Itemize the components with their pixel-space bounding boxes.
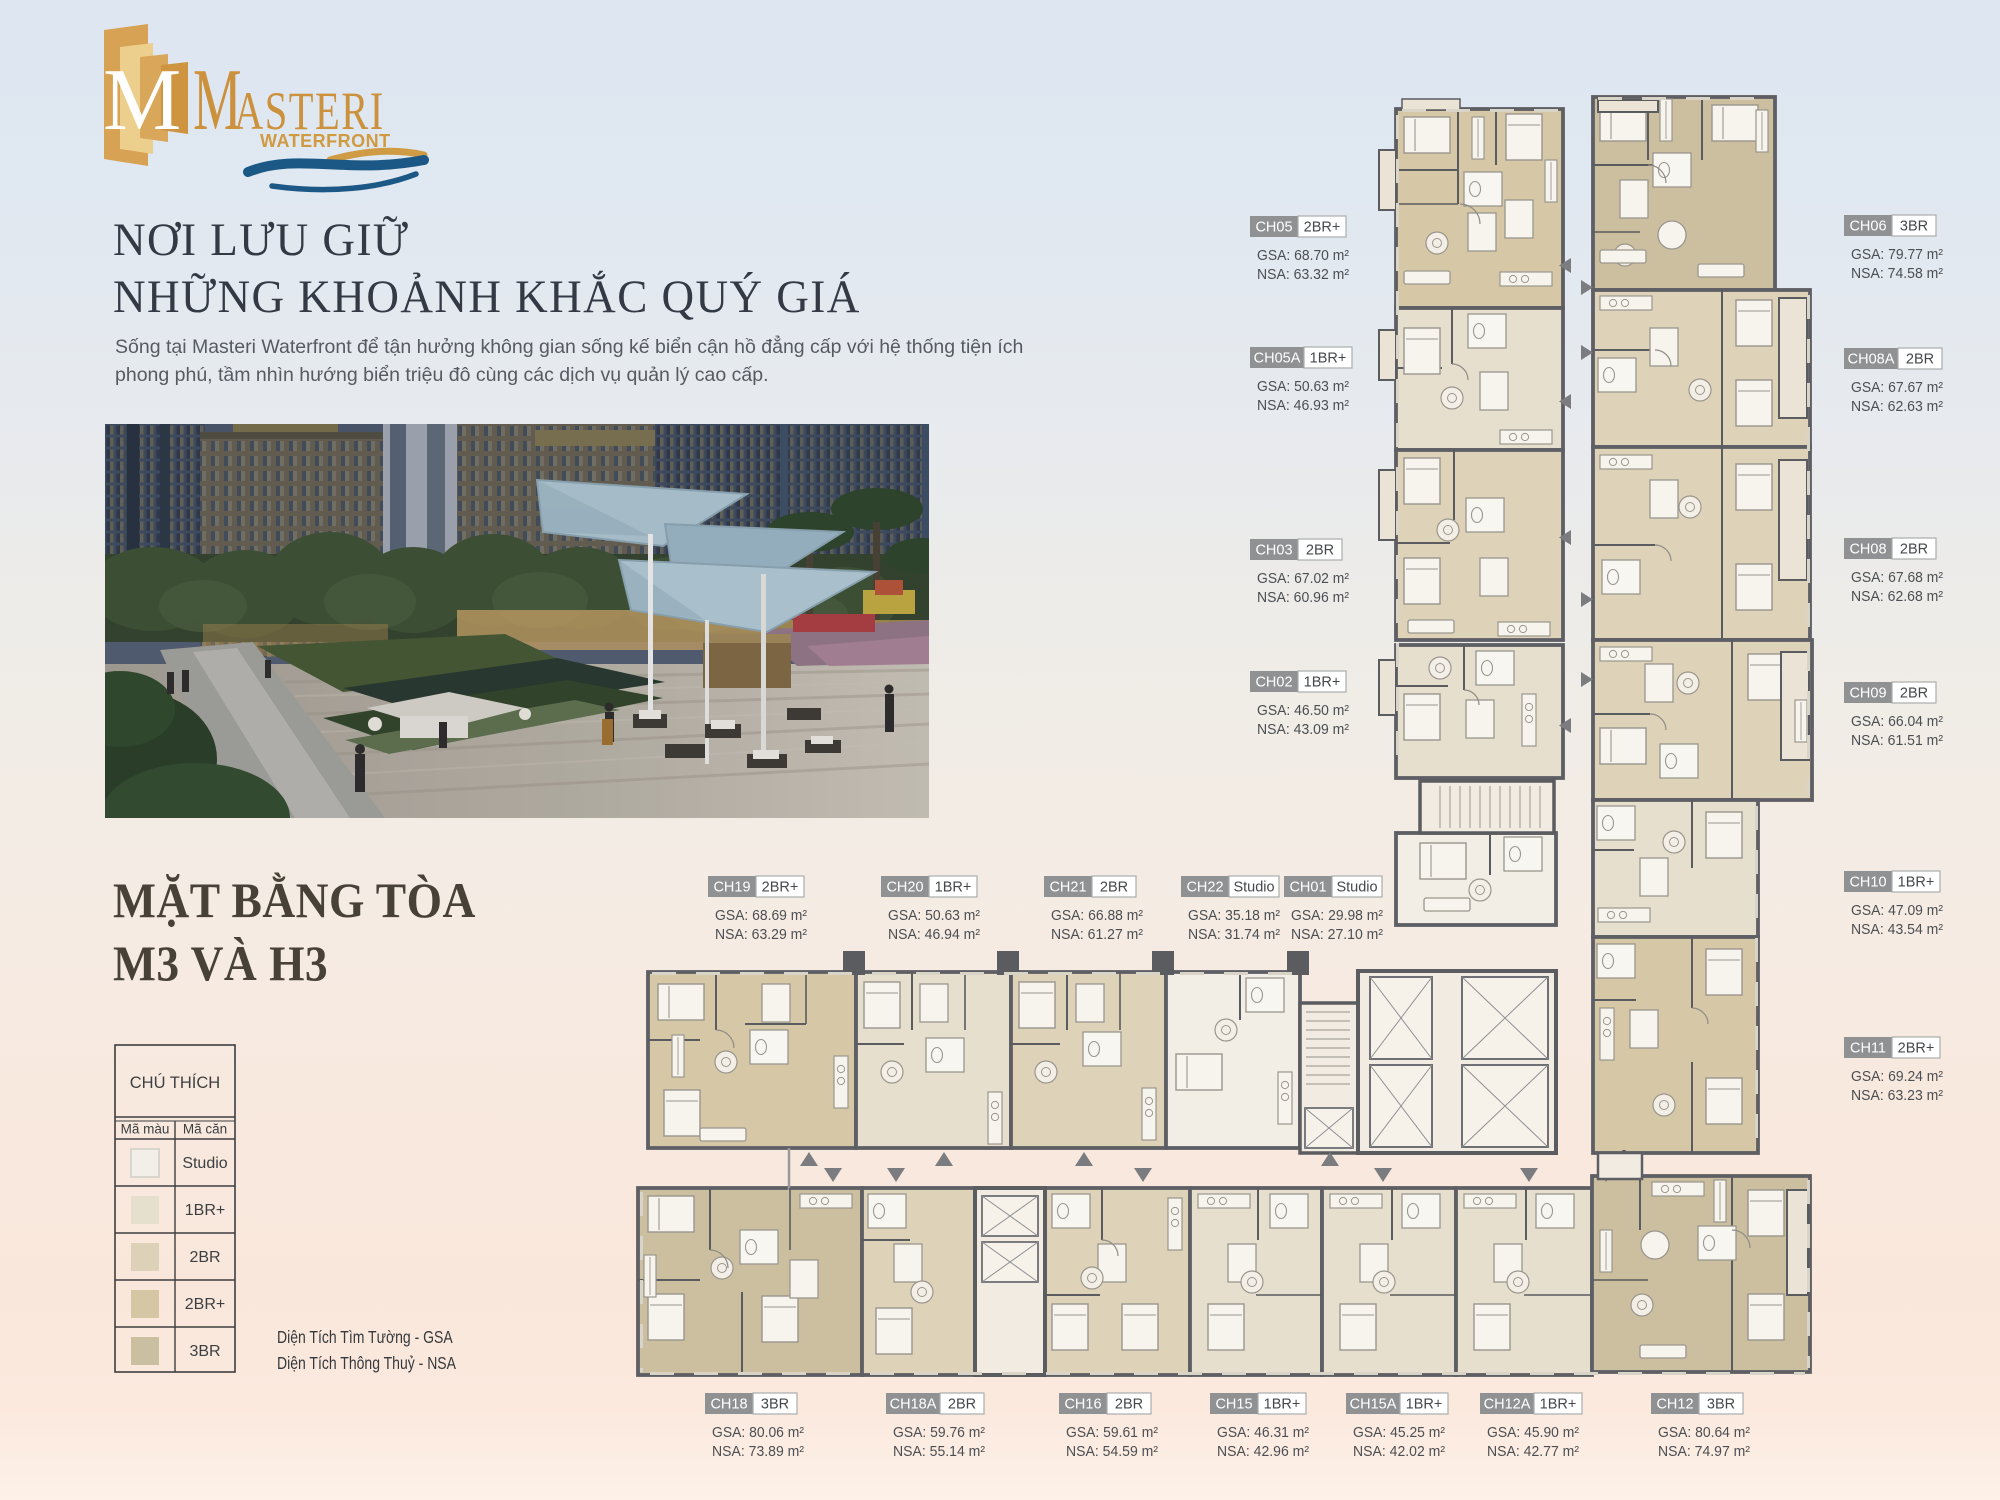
svg-text:GSA: 29.98 m²: GSA: 29.98 m² [1291, 908, 1383, 924]
svg-text:NSA: 55.14 m²: NSA: 55.14 m² [893, 1444, 985, 1460]
svg-text:NSA: 43.54 m²: NSA: 43.54 m² [1851, 922, 1943, 938]
svg-text:1BR+: 1BR+ [1310, 351, 1347, 367]
svg-text:2BR: 2BR [1100, 880, 1128, 896]
svg-text:Studio: Studio [1233, 880, 1274, 896]
svg-text:GSA: 80.64 m²: GSA: 80.64 m² [1658, 1425, 1750, 1441]
svg-text:CH09: CH09 [1849, 686, 1886, 702]
svg-text:NSA: 60.96 m²: NSA: 60.96 m² [1257, 590, 1349, 606]
svg-text:CH12A: CH12A [1484, 1397, 1531, 1413]
svg-text:2BR: 2BR [1115, 1397, 1143, 1413]
svg-text:CH15: CH15 [1215, 1397, 1252, 1413]
svg-text:GSA: 67.68 m²: GSA: 67.68 m² [1851, 570, 1943, 586]
svg-text:2BR: 2BR [1306, 543, 1334, 559]
svg-text:CH16: CH16 [1064, 1397, 1101, 1413]
svg-text:NSA: 43.09 m²: NSA: 43.09 m² [1257, 722, 1349, 738]
svg-text:2BR+: 2BR+ [762, 880, 799, 896]
svg-text:CH15A: CH15A [1350, 1397, 1397, 1413]
svg-text:2BR+: 2BR+ [1898, 1041, 1935, 1057]
svg-text:NSA: 73.89 m²: NSA: 73.89 m² [712, 1444, 804, 1460]
svg-text:CH19: CH19 [713, 880, 750, 896]
svg-text:2BR+: 2BR+ [1304, 220, 1341, 236]
svg-text:2BR: 2BR [948, 1397, 976, 1413]
svg-text:1BR+: 1BR+ [1304, 675, 1341, 691]
svg-text:GSA: 66.04 m²: GSA: 66.04 m² [1851, 714, 1943, 730]
svg-text:2BR: 2BR [1906, 352, 1934, 368]
svg-text:Studio: Studio [1336, 880, 1377, 896]
svg-text:GSA: 67.67 m²: GSA: 67.67 m² [1851, 380, 1943, 396]
svg-text:GSA: 46.50 m²: GSA: 46.50 m² [1257, 703, 1349, 719]
svg-text:GSA: 67.02 m²: GSA: 67.02 m² [1257, 571, 1349, 587]
svg-text:GSA: 46.31 m²: GSA: 46.31 m² [1217, 1425, 1309, 1441]
svg-text:NSA: 62.68 m²: NSA: 62.68 m² [1851, 589, 1943, 605]
svg-text:NSA: 31.74 m²: NSA: 31.74 m² [1188, 927, 1280, 943]
svg-text:3BR: 3BR [761, 1397, 789, 1413]
svg-text:GSA: 45.90 m²: GSA: 45.90 m² [1487, 1425, 1579, 1441]
svg-text:NSA: 42.77 m²: NSA: 42.77 m² [1487, 1444, 1579, 1460]
svg-text:NSA: 62.63 m²: NSA: 62.63 m² [1851, 399, 1943, 415]
svg-text:GSA: 68.69 m²: GSA: 68.69 m² [715, 908, 807, 924]
svg-text:CH05: CH05 [1255, 220, 1292, 236]
svg-text:CH10: CH10 [1849, 875, 1886, 891]
svg-text:NSA: 54.59 m²: NSA: 54.59 m² [1066, 1444, 1158, 1460]
svg-text:GSA: 50.63 m²: GSA: 50.63 m² [1257, 379, 1349, 395]
svg-text:CH21: CH21 [1049, 880, 1086, 896]
svg-text:NSA: 42.02 m²: NSA: 42.02 m² [1353, 1444, 1445, 1460]
svg-text:3BR: 3BR [1707, 1397, 1735, 1413]
svg-text:NSA: 63.23 m²: NSA: 63.23 m² [1851, 1088, 1943, 1104]
svg-text:GSA: 45.25 m²: GSA: 45.25 m² [1353, 1425, 1445, 1441]
svg-text:CH20: CH20 [886, 880, 923, 896]
svg-text:NSA: 63.29 m²: NSA: 63.29 m² [715, 927, 807, 943]
svg-text:NSA: 74.58 m²: NSA: 74.58 m² [1851, 266, 1943, 282]
svg-text:CH18: CH18 [710, 1397, 747, 1413]
svg-text:CH11: CH11 [1850, 1041, 1886, 1057]
svg-text:NSA: 42.96 m²: NSA: 42.96 m² [1217, 1444, 1309, 1460]
svg-text:GSA: 47.09 m²: GSA: 47.09 m² [1851, 903, 1943, 919]
svg-text:CH08: CH08 [1849, 542, 1886, 558]
svg-text:CH02: CH02 [1255, 675, 1292, 691]
svg-text:GSA: 68.70 m²: GSA: 68.70 m² [1257, 248, 1349, 264]
svg-text:GSA: 69.24 m²: GSA: 69.24 m² [1851, 1069, 1943, 1085]
svg-text:GSA: 66.88 m²: GSA: 66.88 m² [1051, 908, 1143, 924]
svg-text:NSA: 27.10 m²: NSA: 27.10 m² [1291, 927, 1383, 943]
svg-text:1BR+: 1BR+ [1264, 1397, 1301, 1413]
svg-text:GSA: 59.61 m²: GSA: 59.61 m² [1066, 1425, 1158, 1441]
svg-text:NSA: 46.93 m²: NSA: 46.93 m² [1257, 398, 1349, 414]
svg-text:GSA: 80.06 m²: GSA: 80.06 m² [712, 1425, 804, 1441]
svg-text:2BR: 2BR [1900, 542, 1928, 558]
svg-text:1BR+: 1BR+ [1898, 875, 1935, 891]
svg-text:1BR+: 1BR+ [1540, 1397, 1577, 1413]
svg-text:CH06: CH06 [1849, 219, 1886, 235]
svg-text:CH01: CH01 [1289, 880, 1326, 896]
svg-text:GSA: 35.18 m²: GSA: 35.18 m² [1188, 908, 1280, 924]
svg-text:NSA: 74.97 m²: NSA: 74.97 m² [1658, 1444, 1750, 1460]
svg-text:1BR+: 1BR+ [1406, 1397, 1443, 1413]
svg-text:NSA: 61.51 m²: NSA: 61.51 m² [1851, 733, 1943, 749]
svg-text:CH22: CH22 [1186, 880, 1223, 896]
svg-text:NSA: 61.27 m²: NSA: 61.27 m² [1051, 927, 1143, 943]
svg-text:1BR+: 1BR+ [935, 880, 972, 896]
svg-text:CH12: CH12 [1656, 1397, 1693, 1413]
svg-text:CH03: CH03 [1255, 543, 1292, 559]
svg-text:CH05A: CH05A [1254, 351, 1301, 367]
svg-text:NSA: 63.32 m²: NSA: 63.32 m² [1257, 267, 1349, 283]
svg-text:3BR: 3BR [1900, 219, 1928, 235]
svg-text:CH18A: CH18A [890, 1397, 937, 1413]
svg-text:2BR: 2BR [1900, 686, 1928, 702]
svg-text:CH08A: CH08A [1848, 352, 1895, 368]
svg-text:GSA: 50.63 m²: GSA: 50.63 m² [888, 908, 980, 924]
svg-text:NSA: 46.94 m²: NSA: 46.94 m² [888, 927, 980, 943]
svg-text:GSA: 79.77 m²: GSA: 79.77 m² [1851, 247, 1943, 263]
svg-text:GSA: 59.76 m²: GSA: 59.76 m² [893, 1425, 985, 1441]
